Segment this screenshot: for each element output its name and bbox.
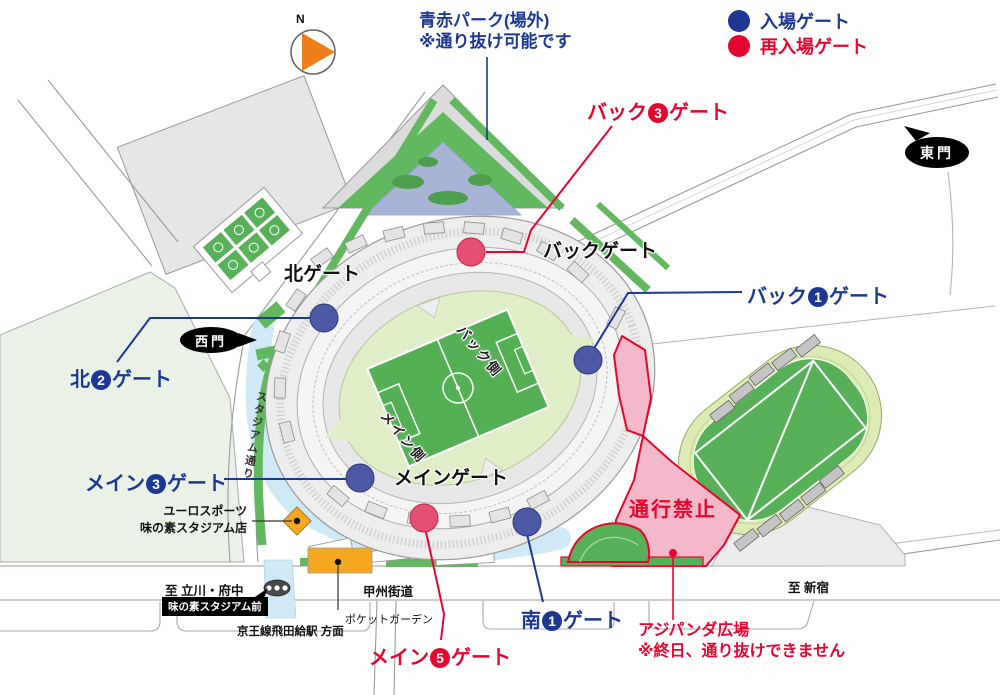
main3-number-badge: 3 (146, 474, 166, 494)
reentry-gate-icon (728, 35, 750, 57)
pedestrian-crossing-icon (264, 580, 290, 596)
north2-number-badge: 2 (91, 370, 111, 390)
pocket-garden-marker (308, 548, 372, 573)
to-shinjuku-label: 至 新宿 (788, 577, 829, 596)
aoaka-park (323, 85, 563, 215)
legend: 入場ゲート 再入場ゲート (728, 8, 868, 58)
north2-gate-label: 北2ゲート (70, 363, 172, 392)
station-direction-label: 京王線飛田給駅 方面 (237, 623, 344, 639)
main-gate-label: メインゲート (394, 463, 508, 490)
no-entry-label: 通行禁止 (629, 493, 717, 522)
back1-number-badge: 1 (808, 287, 828, 307)
east-door-badge: 東門 (905, 137, 969, 168)
back3-gate-label: バック3ゲート (587, 96, 729, 125)
main5-gate-dot[interactable] (410, 504, 439, 533)
legend-entry-row: 入場ゲート (728, 8, 868, 33)
north-gate-label: 北ゲート (284, 259, 360, 286)
aoaka-park-label: 青赤パーク(場外) ※通り抜け可能です (419, 10, 572, 53)
main3-gate-dot[interactable] (346, 464, 375, 493)
back-gate-dot[interactable] (457, 238, 486, 267)
stadium-area-map: N 入場ゲート 再入場ゲート 青赤パーク(場外) ※通り抜け可能です バック3ゲ… (0, 0, 1000, 695)
west-door-badge: 西門 (180, 327, 242, 353)
legend-reentry-row: 再入場ゲート (728, 33, 868, 58)
back1-gate-label: バック1ゲート (747, 280, 889, 309)
legend-entry-label: 入場ゲート (760, 8, 850, 34)
main5-gate-label: メイン5ゲート (369, 641, 511, 670)
main5-number-badge: 5 (430, 648, 450, 668)
map-canvas (0, 0, 1000, 695)
back1-gate-dot[interactable] (574, 346, 603, 375)
bus-stop-badge: 味の素スタジアム前 (162, 597, 268, 616)
ajipanda-label: アジパンダ広場 ※終日、通り抜けできません (638, 621, 845, 663)
main3-gate-label: メイン3ゲート (85, 467, 227, 496)
back3-number-badge: 3 (648, 103, 668, 123)
entry-gate-icon (728, 10, 750, 32)
ajipanda-dot (669, 549, 677, 557)
south1-number-badge: 1 (542, 611, 562, 631)
south1-gate-dot[interactable] (513, 508, 542, 537)
compass-north-label: N (296, 12, 305, 26)
north-gate-dot[interactable] (310, 304, 339, 333)
pocket-garden-label: ポケットガーデン (345, 611, 433, 627)
south1-gate-label: 南1ゲート (521, 604, 623, 633)
compass-icon (291, 30, 335, 74)
legend-reentry-label: 再入場ゲート (760, 33, 868, 59)
euro-sports-label: ユーロスポーツ 味の素スタジアム店 (140, 503, 247, 537)
koshu-kaido-label: 甲州街道 (363, 581, 413, 600)
back-gate-label: バックゲート (543, 236, 657, 263)
